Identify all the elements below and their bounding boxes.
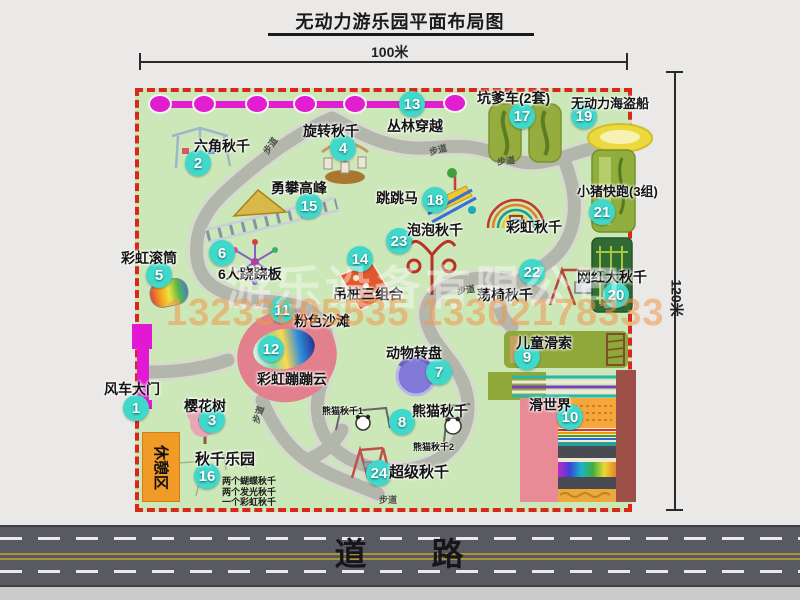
attraction-6-badge: 6 <box>209 240 235 266</box>
path-label: 步道 <box>379 493 397 506</box>
page-title: 无动力游乐园平面布局图 <box>0 8 800 34</box>
attraction-7-label: 动物转盘 <box>386 343 442 363</box>
attraction-23-label: 泡泡秋千 <box>407 220 463 240</box>
attraction-22-badge: 22 <box>519 259 545 285</box>
attraction-21-badge: 21 <box>589 199 615 225</box>
attraction-18-badge: 18 <box>422 187 448 213</box>
rest-area-label: 休憩区 <box>151 444 172 489</box>
swing-park-note-1: 两个蝴蝶秋千 <box>222 476 276 487</box>
attraction-4-label: 旋转秋千 <box>303 121 359 141</box>
path-label: 步道 <box>456 282 476 297</box>
attraction-6-label: 6人跷跷板 <box>218 264 282 284</box>
attraction-10-label: 滑世界 <box>529 395 571 415</box>
attraction-12-badge: 12 <box>258 336 284 362</box>
attraction-11-label: 粉色沙滩 <box>294 311 350 331</box>
attraction-2-label: 六角秋千 <box>194 136 250 156</box>
width-dimension-tick-left <box>139 53 141 70</box>
attraction-24-label: 超级秋千 <box>389 461 449 482</box>
height-dimension-tick-top <box>666 71 683 73</box>
attraction-22-label: 荡椅秋千 <box>477 285 533 305</box>
attraction-15-label: 勇攀高峰 <box>271 178 327 198</box>
title-underline <box>268 33 534 36</box>
attraction-20-label: 网红大秋千 <box>577 267 647 287</box>
width-dimension-label: 100米 <box>371 42 408 62</box>
path-label: 步道 <box>496 153 515 168</box>
attraction-14-label: 吊桩三组合 <box>333 284 403 304</box>
road-lower-shoulder <box>0 587 800 600</box>
rest-area: 休憩区 <box>142 432 180 502</box>
width-dimension-tick-right <box>626 53 628 70</box>
attraction-21-label: 小猪快跑(3组) <box>577 181 658 200</box>
rainbow-swing-label: 彩虹秋千 <box>506 217 562 237</box>
attraction-9-label: 儿童滑索 <box>516 333 572 353</box>
attraction-19-label: 无动力海盗船 <box>571 93 649 112</box>
attraction-12-label: 彩虹蹦蹦云 <box>257 369 327 389</box>
attraction-5-label: 彩虹滚筒 <box>121 248 177 268</box>
panda-swing-1-label: 熊猫秋千1 <box>322 404 363 417</box>
road-label: 道 路 <box>0 529 800 575</box>
attraction-18-label: 跳跳马 <box>376 188 418 208</box>
swing-park-notes: 两个蝴蝶秋千 两个发光秋千 一个彩虹秋千 <box>222 476 276 508</box>
attraction-11-badge: 11 <box>269 297 295 323</box>
height-dimension-label: 120米 <box>667 279 687 316</box>
playground-plan-canvas: 无动力游乐园平面布局图 100米 120米 <box>0 0 800 600</box>
attraction-13-label: 丛林穿越 <box>387 116 443 136</box>
attraction-16-label: 秋千乐园 <box>195 448 255 469</box>
attraction-17-label: 坑爹车(2套) <box>477 88 550 108</box>
swing-park-note-3: 一个彩虹秋千 <box>222 497 276 508</box>
swing-park-note-2: 两个发光秋千 <box>222 487 276 498</box>
attraction-13-badge: 13 <box>399 91 425 117</box>
attraction-1-label: 风车大门 <box>104 379 160 399</box>
attraction-3-label: 樱花树 <box>184 396 226 416</box>
attraction-8-label: 熊猫秋千 <box>412 401 468 421</box>
panda-swing-2-label: 熊猫秋千2 <box>413 440 454 453</box>
attraction-14-badge: 14 <box>347 246 373 272</box>
height-dimension-tick-bottom <box>666 509 683 511</box>
